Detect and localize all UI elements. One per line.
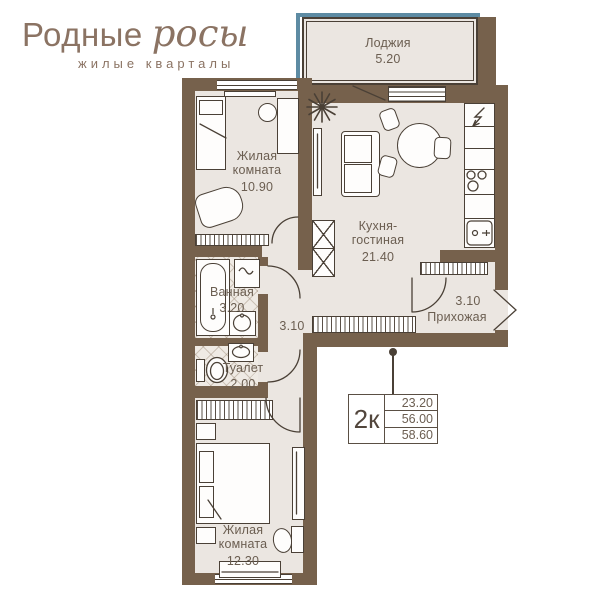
room-label-bathroom: Ванная 3.20 <box>198 285 266 316</box>
logo-brand-text: Родные <box>22 16 143 53</box>
room-area: 3.10 <box>279 319 304 333</box>
apartment-info-box: 2к 23.20 56.00 58.60 <box>348 394 438 444</box>
kitchen-counter-icon <box>464 194 495 219</box>
chair-icon <box>258 103 277 122</box>
sofa-cushion-icon <box>344 164 372 193</box>
logo: Родныеросы жилые кварталы <box>22 12 249 71</box>
loggia-glazing-line-left <box>296 13 300 85</box>
door-opening-bedroom1 <box>262 245 298 257</box>
pillow-icon <box>199 100 223 115</box>
room-label-hallway: Прихожая <box>420 310 494 324</box>
toilet-icon <box>196 359 205 382</box>
entry-door-opening <box>495 290 508 330</box>
room-name: Кухня-гостиная <box>352 219 404 247</box>
living-area-value: 23.20 <box>385 395 437 410</box>
radiator-icon <box>224 91 276 97</box>
desk-icon <box>277 98 299 154</box>
room-area: 2.00 <box>214 377 272 391</box>
hallway-closet-icon <box>312 316 416 333</box>
room-name: Жилая комната <box>233 149 282 177</box>
logo-subtitle: жилые кварталы <box>78 56 249 71</box>
kitchen-counter-icon <box>464 148 495 170</box>
logo-brand-line: Родныеросы <box>22 12 249 55</box>
room-name: Ванная <box>210 285 254 299</box>
room-name: Лоджия <box>365 36 411 50</box>
room-label-kitchen: Кухня-гостиная 21.40 <box>333 219 423 264</box>
wall <box>182 78 195 585</box>
room-label-bedroom1: Жилая комната 10.90 <box>212 149 302 194</box>
room-name: Жилая комната <box>219 523 268 551</box>
wall <box>440 250 495 262</box>
pillow-icon <box>199 451 214 483</box>
wall <box>495 85 508 290</box>
room-area: 12.30 <box>199 554 287 568</box>
room-name: Туалет <box>223 361 264 375</box>
room-area: 3.20 <box>198 301 266 315</box>
wardrobe-icon <box>312 248 335 277</box>
room-area: 10.90 <box>212 180 302 194</box>
room-area: 3.10 <box>455 294 480 308</box>
room-name: Прихожая <box>427 310 487 324</box>
tv-stand-icon <box>313 128 322 196</box>
radiator-icon <box>420 262 488 275</box>
room-area: 5.20 <box>330 52 446 66</box>
callout-leader-line <box>392 353 394 394</box>
wardrobe-icon <box>196 400 273 420</box>
wall <box>182 245 262 257</box>
electric-panel-icon <box>464 103 495 127</box>
room-label-bedroom2: Жилая комната 12.30 <box>199 523 287 568</box>
total-area-value: 58.60 <box>385 427 437 443</box>
kitchen-counter-icon <box>464 126 495 149</box>
corridor-area-label: 3.10 <box>272 319 312 333</box>
sink-icon <box>228 343 254 362</box>
washing-machine-icon <box>234 259 260 288</box>
sofa-cushion-icon <box>344 135 372 163</box>
dresser-icon <box>292 447 305 520</box>
stove-icon <box>464 169 495 195</box>
hallway-area-label: 3.10 <box>446 294 490 308</box>
window-bedroom1 <box>217 80 297 90</box>
apartment-areas: 23.20 56.00 58.60 <box>385 395 437 443</box>
room-label-toilet: Туалет 2.00 <box>214 361 272 392</box>
room-label-loggia: Лоджия 5.20 <box>330 36 446 67</box>
chair-icon <box>433 137 451 160</box>
wall <box>303 347 317 585</box>
side-table-icon <box>291 526 304 553</box>
wall <box>182 338 268 346</box>
window-kitchen <box>388 86 446 102</box>
floor-plan-page: Родныеросы жилые кварталы <box>0 0 600 600</box>
wardrobe-icon <box>312 220 335 249</box>
kitchen-sink-icon <box>464 218 495 248</box>
room-area: 21.40 <box>333 250 423 264</box>
apartment-type-label: 2к <box>349 395 385 443</box>
wall <box>478 17 496 85</box>
floor-area-value: 56.00 <box>385 410 437 426</box>
logo-brand-script-text: росы <box>152 12 249 55</box>
nightstand-icon <box>196 423 216 440</box>
pillow-icon <box>199 486 214 518</box>
wall <box>258 346 268 352</box>
wardrobe-icon <box>195 234 269 246</box>
wall <box>303 333 508 347</box>
